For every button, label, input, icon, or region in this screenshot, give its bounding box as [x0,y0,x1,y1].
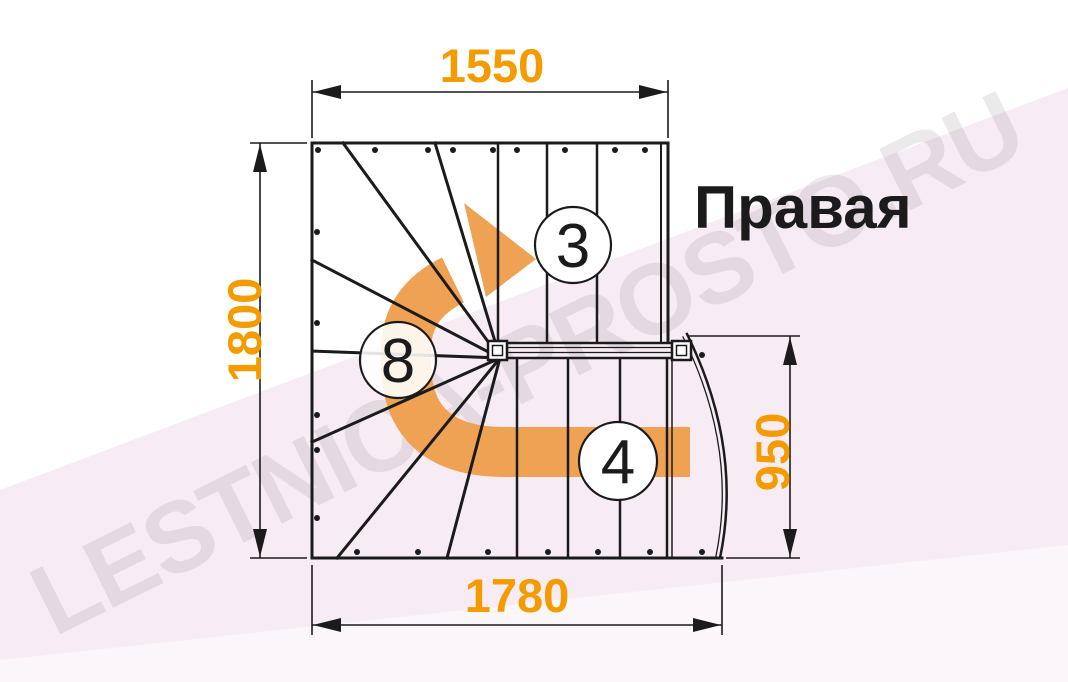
lower-flight-count: 4 [601,428,635,497]
newel-post-left [488,341,507,360]
step-count-circle-upper: 3 [535,207,611,283]
staircase-plan-diagram: LESTNICA-PROSTO.RU [0,0,1068,682]
direction-arrow-head [464,203,536,297]
dimension-top-label: 1550 [440,39,545,92]
newel-post-right [672,341,691,360]
dimension-bottom-label: 1780 [465,569,570,622]
step-count-circle-lower: 4 [579,422,657,500]
step-count-circle-winder: 8 [360,322,436,398]
upper-flight-count: 3 [556,212,590,281]
page-title: Правая [694,174,912,241]
winder-count: 8 [381,327,415,396]
dimension-right-label: 950 [746,413,799,491]
dimension-left-label: 1800 [218,278,271,383]
